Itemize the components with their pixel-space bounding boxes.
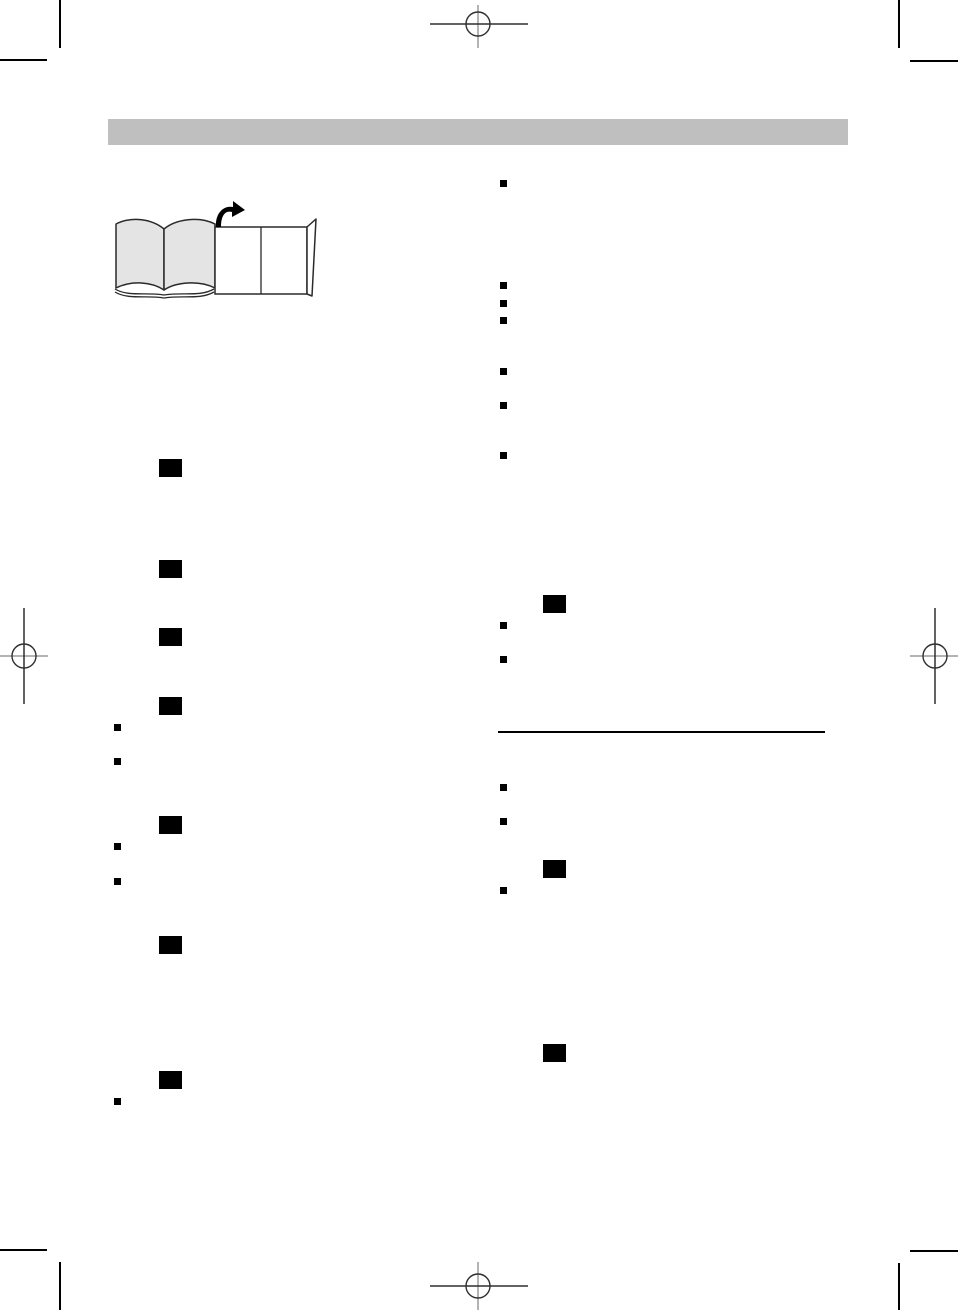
step-number-box	[159, 459, 182, 477]
step-number-box	[159, 816, 182, 834]
bullet-square	[500, 180, 507, 187]
bullet-square	[500, 368, 507, 375]
step-number-box	[159, 1071, 182, 1089]
book-left-page	[116, 219, 164, 290]
step-number-box	[159, 628, 182, 646]
bullet-square	[500, 818, 507, 825]
crop-mark-top-left	[0, 0, 60, 60]
bullet-square	[500, 282, 507, 289]
crop-mark-bottom-left	[0, 1250, 60, 1310]
crop-mark-top-right	[899, 0, 958, 61]
step-number-box	[543, 595, 566, 613]
unfold-arrow-icon	[216, 201, 245, 227]
foldout-edge-strip	[307, 219, 316, 296]
crop-mark-bottom-right	[899, 1251, 958, 1310]
bullet-square	[114, 1098, 121, 1105]
book-right-page	[164, 219, 215, 290]
bullet-square	[500, 784, 507, 791]
bullet-square	[500, 317, 507, 324]
book-foldout-illustration	[106, 198, 326, 310]
step-number-box	[543, 1044, 566, 1062]
document-page	[0, 0, 958, 1310]
bullet-square	[114, 724, 121, 731]
bullet-square	[500, 622, 507, 629]
header-bar	[108, 119, 848, 145]
registration-mark-right-middle	[910, 608, 958, 704]
step-number-box	[159, 936, 182, 954]
bullet-square	[500, 656, 507, 663]
bullet-square	[114, 758, 121, 765]
bullet-square	[500, 402, 507, 409]
step-number-box	[159, 560, 182, 578]
bullet-square	[114, 843, 121, 850]
step-number-box	[543, 860, 566, 878]
bullet-square	[500, 887, 507, 894]
crop-marks	[0, 0, 958, 1310]
bullet-square	[114, 878, 121, 885]
registration-mark-top-center	[430, 5, 528, 48]
registration-mark-left-middle	[0, 608, 48, 704]
step-number-box	[159, 697, 182, 715]
bullet-square	[500, 300, 507, 307]
bullet-square	[500, 452, 507, 459]
registration-mark-bottom-center	[430, 1262, 528, 1310]
section-divider	[498, 731, 825, 733]
